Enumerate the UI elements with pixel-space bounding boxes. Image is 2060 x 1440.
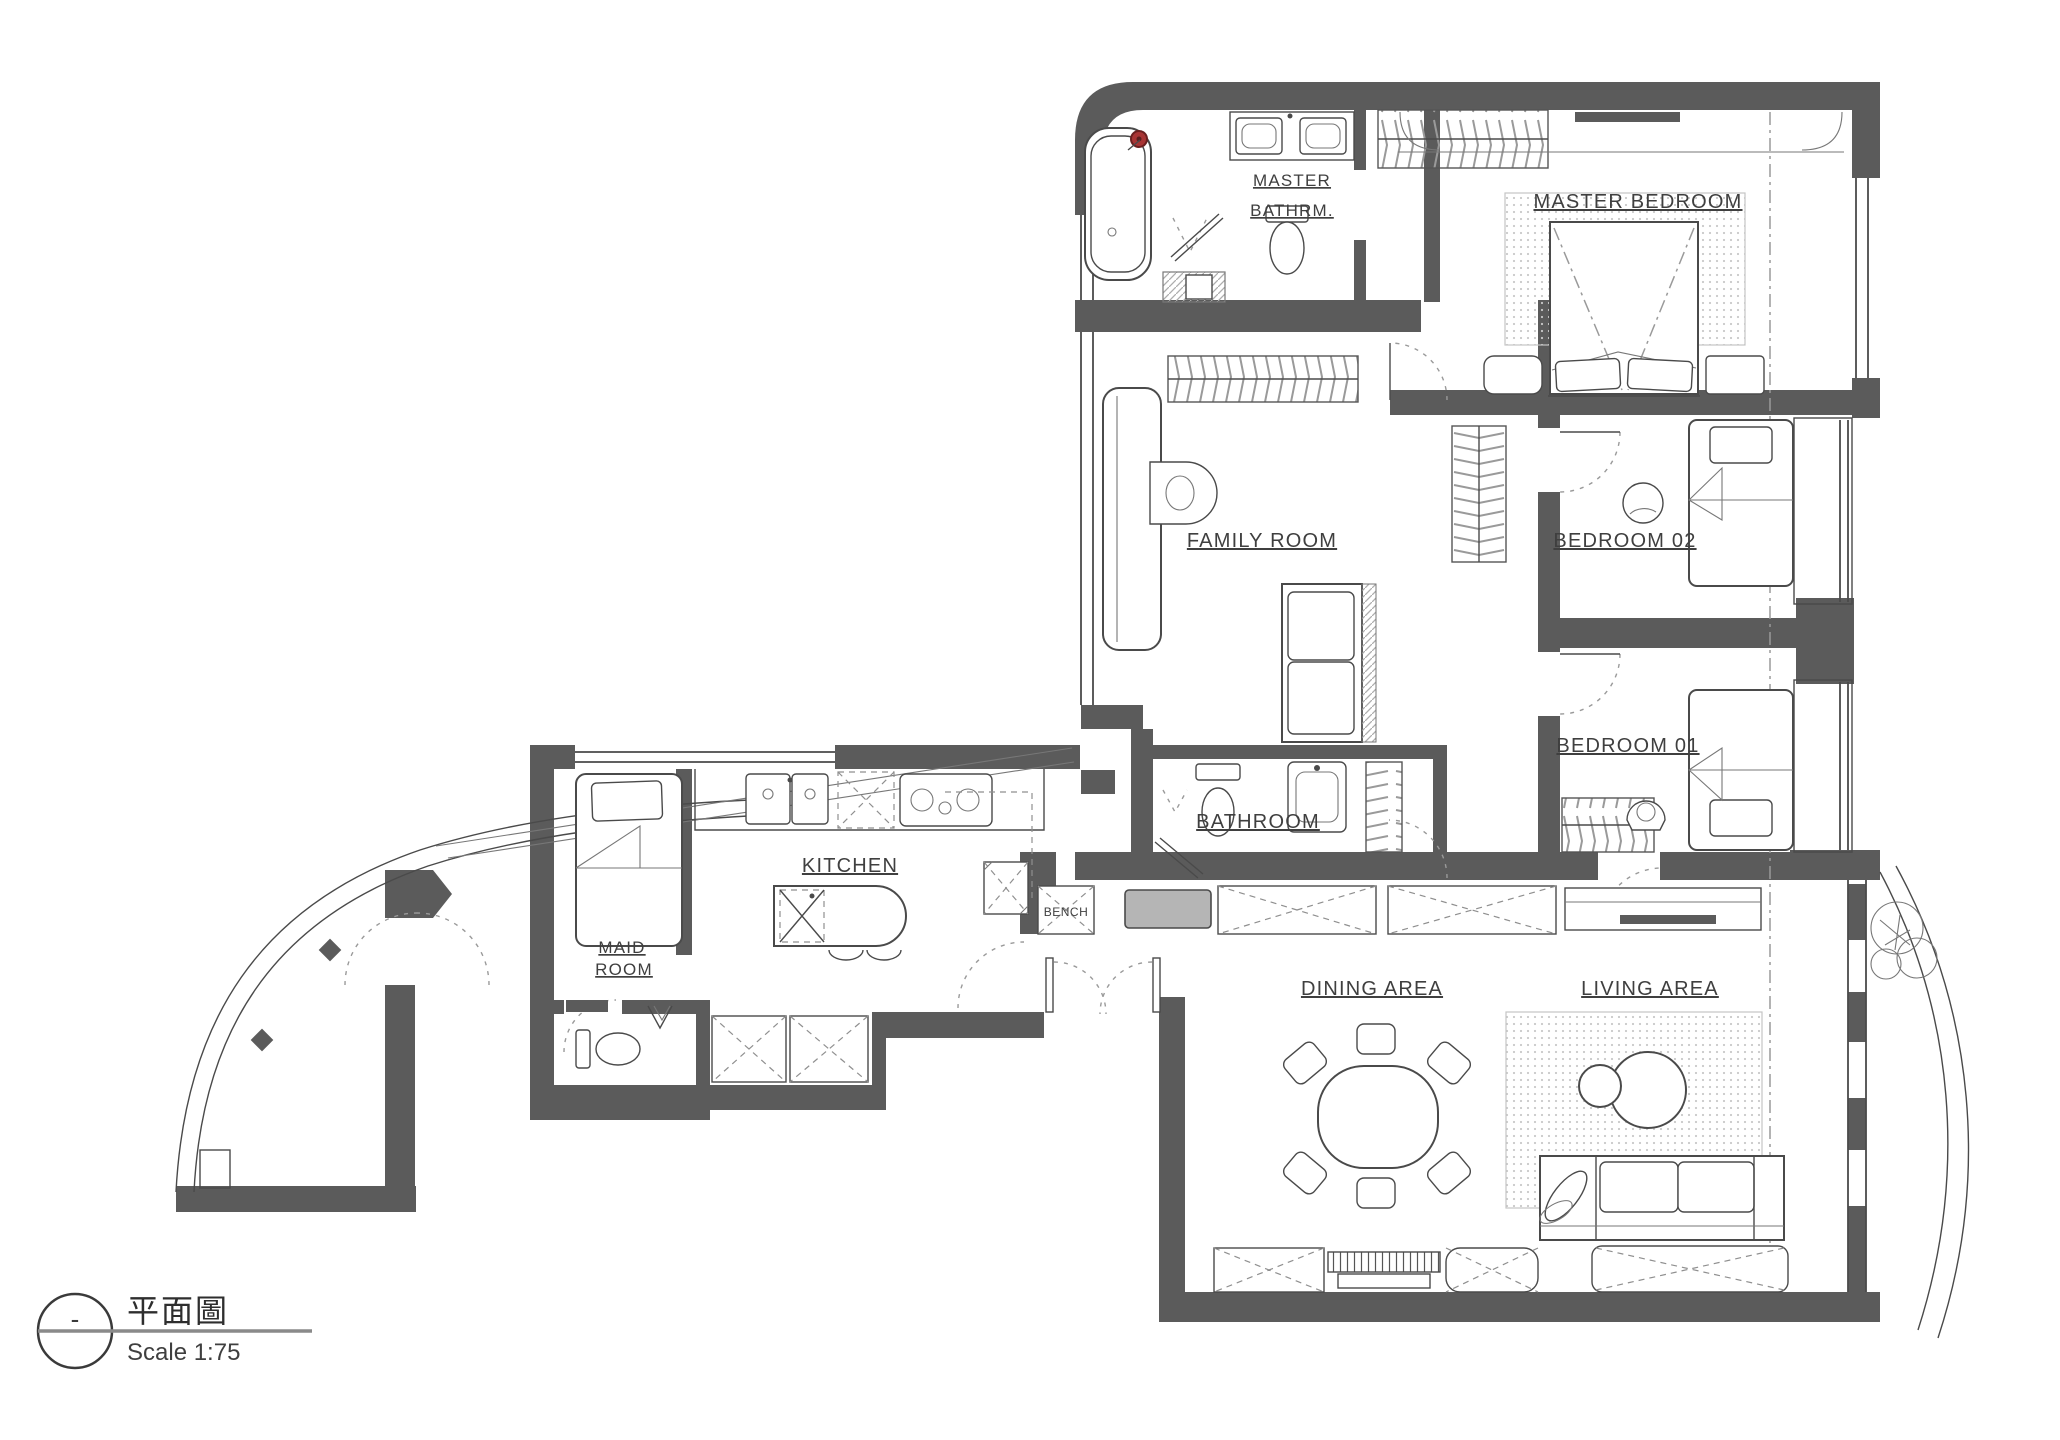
bed-02: [1689, 420, 1793, 586]
dining-chair: [1357, 1178, 1395, 1208]
window-seat: [1592, 1246, 1788, 1292]
floor-plan-canvas: MASTER BATHRM. MASTER BEDROOM FAMILY ROO…: [0, 0, 2060, 1440]
cooktop: [900, 774, 992, 826]
label-master-bedroom: MASTER BEDROOM: [1533, 191, 1742, 213]
maid-bed: [576, 774, 682, 946]
label-bedroom-02: BEDROOM 02: [1553, 530, 1696, 552]
nightstand-right: [1706, 356, 1764, 394]
label-bedroom-01: BEDROOM 01: [1556, 735, 1699, 757]
family-room-furniture: [1103, 388, 1376, 742]
label-bench: BENCH: [1044, 905, 1089, 919]
armchair: [1150, 462, 1217, 524]
label-dining-area: DINING AREA: [1301, 978, 1443, 1000]
label-maid-room-line1: MAID: [598, 938, 645, 957]
floor-plan-drawing: MASTER BATHRM. MASTER BEDROOM FAMILY ROO…: [0, 0, 2060, 1440]
side-table: [1579, 1065, 1621, 1107]
label-maid-room-line2: ROOM: [595, 960, 653, 979]
dining-chair: [1425, 1149, 1473, 1196]
dining-chair: [1357, 1024, 1395, 1054]
piano: [1328, 1252, 1440, 1288]
bedroom-02-furniture: [1623, 420, 1793, 586]
bed-01: [1689, 690, 1793, 850]
stool: [829, 950, 863, 960]
dining-chair: [1281, 1149, 1329, 1196]
washer: [566, 1000, 608, 1012]
bedroom-01-furniture: [1627, 690, 1793, 850]
refrigerator: [984, 862, 1028, 914]
family-sofa: [1282, 584, 1376, 742]
kitchen-sink: [746, 774, 828, 824]
service-toilet: [576, 1030, 640, 1068]
dining-furniture: [1281, 1024, 1473, 1208]
drawing-title: 平面圖: [127, 1293, 229, 1329]
shower-screen: [1171, 214, 1223, 261]
kitchen-island: [774, 886, 906, 960]
master-bed: [1548, 222, 1700, 396]
dining-chair: [1281, 1039, 1329, 1086]
label-master-bathroom-line1: MASTER: [1253, 171, 1331, 190]
chair-02: [1623, 483, 1663, 523]
tv: [1620, 915, 1716, 924]
plant-icon: [1871, 902, 1937, 979]
label-master-bathroom-line2: BATHRM.: [1250, 201, 1334, 220]
living-sofa: [1536, 1156, 1784, 1240]
dining-chair: [1425, 1039, 1473, 1086]
corridor-storage: [1038, 886, 1761, 934]
drawing-scale: Scale 1:75: [127, 1339, 240, 1366]
label-living-area: LIVING AREA: [1581, 978, 1719, 1000]
label-bathroom: BATHROOM: [1196, 811, 1320, 833]
label-family-room: FAMILY ROOM: [1187, 530, 1337, 552]
stool: [867, 950, 901, 960]
dining-table: [1318, 1066, 1438, 1168]
title-block: - 平面圖 Scale 1:75: [38, 1293, 312, 1368]
bench-cushion: [1125, 890, 1211, 928]
nightstand-left: [1484, 356, 1542, 394]
label-kitchen: KITCHEN: [802, 855, 898, 877]
